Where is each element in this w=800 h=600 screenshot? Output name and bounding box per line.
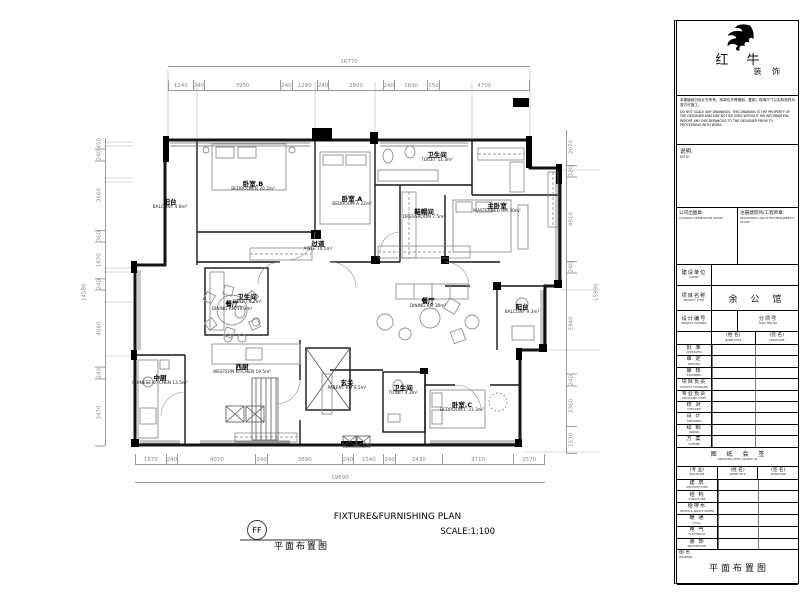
dim-left-segments: 4502403660360187024040602403470: [95, 138, 106, 446]
dim-value: 360: [95, 231, 105, 243]
plan-title-cn: 平面布置图: [274, 539, 329, 552]
dim-bottom-segments: 1570240407024038902401540240243037101570: [135, 454, 545, 465]
project-row: 项目名称PROJECT TITLE 余 公 馆: [677, 286, 798, 311]
dim-value: 1280: [292, 80, 317, 90]
room-label-toilet-c: 卫生间TOILET 4.3m²: [388, 385, 417, 397]
signature-table: (姓 名)NAME/TITLE (签 名)SIGNATURE 批 准APPROV…: [677, 332, 798, 448]
sign-row-approved: 批 准APPROVED: [677, 345, 798, 356]
dim-value: 240: [280, 80, 292, 90]
dim-value: 240: [95, 279, 105, 291]
room-label-toilet-master: 卫生间TOILET 11.3m²: [421, 152, 453, 164]
dim-value: 1570: [513, 454, 545, 464]
joint-row-electrical: 电 气ELECTRICAL: [677, 527, 798, 539]
brand-subname: 装 饰: [749, 67, 784, 77]
project-title-value: 余 公 馆: [712, 286, 798, 310]
ff-symbol: FF: [240, 521, 322, 541]
room-label-chinese-kitchen: 中厨CHINESE KITCHEN 13.5m²: [132, 375, 188, 387]
joint-sign-table: (专 业)DISCIPLINE (姓 名)NAME/TITLE (签 名)SIG…: [677, 467, 798, 551]
dim-value: 240: [95, 368, 105, 380]
room-label-bedroom-a: 卧室.ABEDROOM A 22m²: [332, 196, 371, 208]
room-label-dressroom: 鞋帽间DRESSROOM 7.5m²: [403, 209, 445, 221]
room-label-western-kitchen: 西厨WESTERN KITCHEN 19.5m²: [213, 364, 271, 376]
window-lines: [138, 143, 558, 443]
bull-logo-icon: [716, 23, 760, 53]
stamps-section: 公司出图章: COMPANY PERMISSION STAMP 注册建筑师/工程…: [677, 208, 798, 265]
dim-value: 240: [193, 80, 205, 90]
dim-value: 1690: [394, 80, 427, 90]
disclaimer-section: 本图版权归设计方所有，别单位不得借用、复制，现场尺寸以实际放样为准方可施工。 D…: [677, 96, 798, 145]
dim-value: 4700: [439, 80, 530, 90]
brand-section: 红 牛 装 饰: [677, 21, 798, 96]
design-number-value: [712, 311, 737, 331]
sign-row-checked: 校 对CHECKED: [677, 402, 798, 413]
room-label-dining-main: 餐厅DINING RM 30m²: [410, 298, 446, 310]
sign-row-discipline-chief: 专业负责DISCIPLINE CHIEF: [677, 391, 798, 402]
sign-row-project-manager: 项目负责PROJECT MANAGER: [677, 379, 798, 390]
dim-value: 240: [567, 262, 577, 274]
svg-text:FF: FF: [252, 526, 262, 535]
dim-value: 1240: [168, 80, 193, 90]
plan-title-scale: SCALE:1:100: [370, 527, 495, 537]
room-label-bedroom-c: 卧室.CBEDROOM.C 21.3m²: [440, 402, 484, 414]
dim-value: 320: [567, 166, 577, 178]
dim-value: 240: [383, 80, 395, 90]
outer-walls: [135, 140, 560, 445]
drawing-name-value: 平面布置图: [677, 550, 798, 584]
joint-row-structure: 结 构STRUCTURE: [677, 491, 798, 503]
dim-value: 4070: [177, 454, 255, 464]
dim-value: 3710: [442, 454, 513, 464]
dim-right-segments: 20703204910240594024023601530: [566, 130, 577, 454]
dim-top-segments: 124024039502401280240280024016901504700: [168, 80, 530, 91]
drawing-sheet: FF 阳台BALCONY 4.6m² 卧室.BBEDROOM.B 20.2m² …: [0, 0, 800, 600]
dim-top-overall: 16770: [168, 56, 530, 67]
sign-row-examined: 审 核EXAMINED: [677, 368, 798, 379]
joint-row-architecture: 建 筑ARCHITECTURE: [677, 480, 798, 492]
room-label-aisle: 过道AISLE 10.5m²: [304, 241, 333, 253]
company-stamp-cell: 公司出图章: COMPANY PERMISSION STAMP: [677, 208, 737, 264]
wall-fills: [131, 98, 562, 447]
dim-value: 3890: [267, 454, 342, 464]
dim-value: 240: [317, 80, 329, 90]
dim-left-overall: 14580: [80, 138, 90, 446]
sign-row-drawn: 绘 制DRAWN: [677, 425, 798, 436]
room-label-balcony-b: 阳台BALCONY 4.6m²: [153, 199, 188, 211]
dim-value: 1570: [135, 454, 166, 464]
dim-value: 240: [255, 454, 267, 464]
plan-title-en: FIXTURE&FURNISHING PLAN: [300, 512, 495, 522]
room-label-bedroom-b: 卧室.BBEDROOM.B 20.2m²: [231, 181, 275, 193]
dim-bottom-overall: 19690: [135, 472, 545, 483]
disclaimer-en: DO NOT SCALE ANY DRAWINGS. THIS DRAWING …: [680, 110, 795, 128]
dim-value: 2430: [395, 454, 442, 464]
dim-value: 450: [95, 138, 105, 150]
dim-value: 4060: [95, 290, 105, 368]
dim-value: 2800: [328, 80, 382, 90]
signature-table-header: (姓 名)NAME/TITLE (签 名)SIGNATURE: [677, 332, 798, 345]
cabinets: [235, 148, 558, 442]
title-block: 红 牛 装 饰 本图版权归设计方所有，别单位不得借用、复制，现场尺寸以实际放样为…: [674, 20, 799, 584]
client-row: 建设单位CLIENT: [677, 265, 798, 286]
dim-value: 2360: [567, 386, 577, 427]
dim-value: 3470: [95, 380, 105, 447]
joint-row-plumbing: 给排水WATER & WASTE WATER: [677, 503, 798, 515]
design-number-row: 设计编号PROJECT NUMBER 分项号SUB ITEM NO: [677, 311, 798, 332]
note-label-cn: 说明:: [680, 147, 795, 155]
note-label-en: NOTE: [680, 155, 795, 159]
dim-value: 3660: [95, 161, 105, 231]
dim-value: 240: [166, 454, 178, 464]
joint-row-hvac: 暖 通HVAC: [677, 515, 798, 527]
room-label-balcony-main: 阳台BALCONY 9.3m²: [505, 304, 540, 316]
dim-value: 1530: [567, 427, 577, 454]
joint-sign-title: 图 纸 会 签 DRAWING JOINT SIGNED IN: [677, 448, 798, 467]
room-label-dining-west: 餐厅DINING RM 19.3m²: [212, 301, 253, 313]
dim-value: 5940: [567, 273, 577, 375]
client-value: [712, 265, 798, 285]
disclaimer-cn: 本图版权归设计方所有，别单位不得借用、复制，现场尺寸以实际放样为准方可施工。: [680, 98, 795, 108]
dim-value: 4910: [567, 178, 577, 262]
dim-value: 240: [95, 150, 105, 162]
note-section: 说明: NOTE: [677, 145, 798, 208]
joint-row-decoration: 装 饰DECORATION: [677, 539, 798, 550]
dim-value: 1540: [353, 454, 383, 464]
dim-value: 150: [427, 80, 439, 90]
drawing-name-section: 图 名 DRAWING 平面布置图: [677, 550, 798, 585]
extension-lines: [104, 70, 600, 452]
sign-row-scheme: 方 案SCHEME: [677, 436, 798, 446]
floorplan-area: FF 阳台BALCONY 4.6m² 卧室.BBEDROOM.B 20.2m² …: [0, 0, 676, 600]
dim-value: 3950: [204, 80, 280, 90]
dim-value: 240: [383, 454, 395, 464]
room-label-foyer: 玄关PARENT RM 6.5m²: [328, 380, 367, 392]
sign-row-designed: 设 计DESIGNED: [677, 413, 798, 424]
brand-name: 红 牛: [708, 54, 766, 67]
dim-value: 240: [342, 454, 354, 464]
architect-stamp-cell: 注册建筑师/工程师章: REGISTERED ARCHITECT/ENGINEE…: [737, 208, 798, 264]
dim-value: 1870: [95, 243, 105, 279]
room-label-master-bedroom: 主卧室MASTERBED RM 30m²: [473, 203, 520, 215]
dim-value: 2070: [567, 130, 577, 166]
dim-value: 240: [567, 375, 577, 387]
sign-row-verified: 审 定VERIFIED: [677, 356, 798, 367]
dim-right-overall: 15990: [592, 130, 602, 454]
